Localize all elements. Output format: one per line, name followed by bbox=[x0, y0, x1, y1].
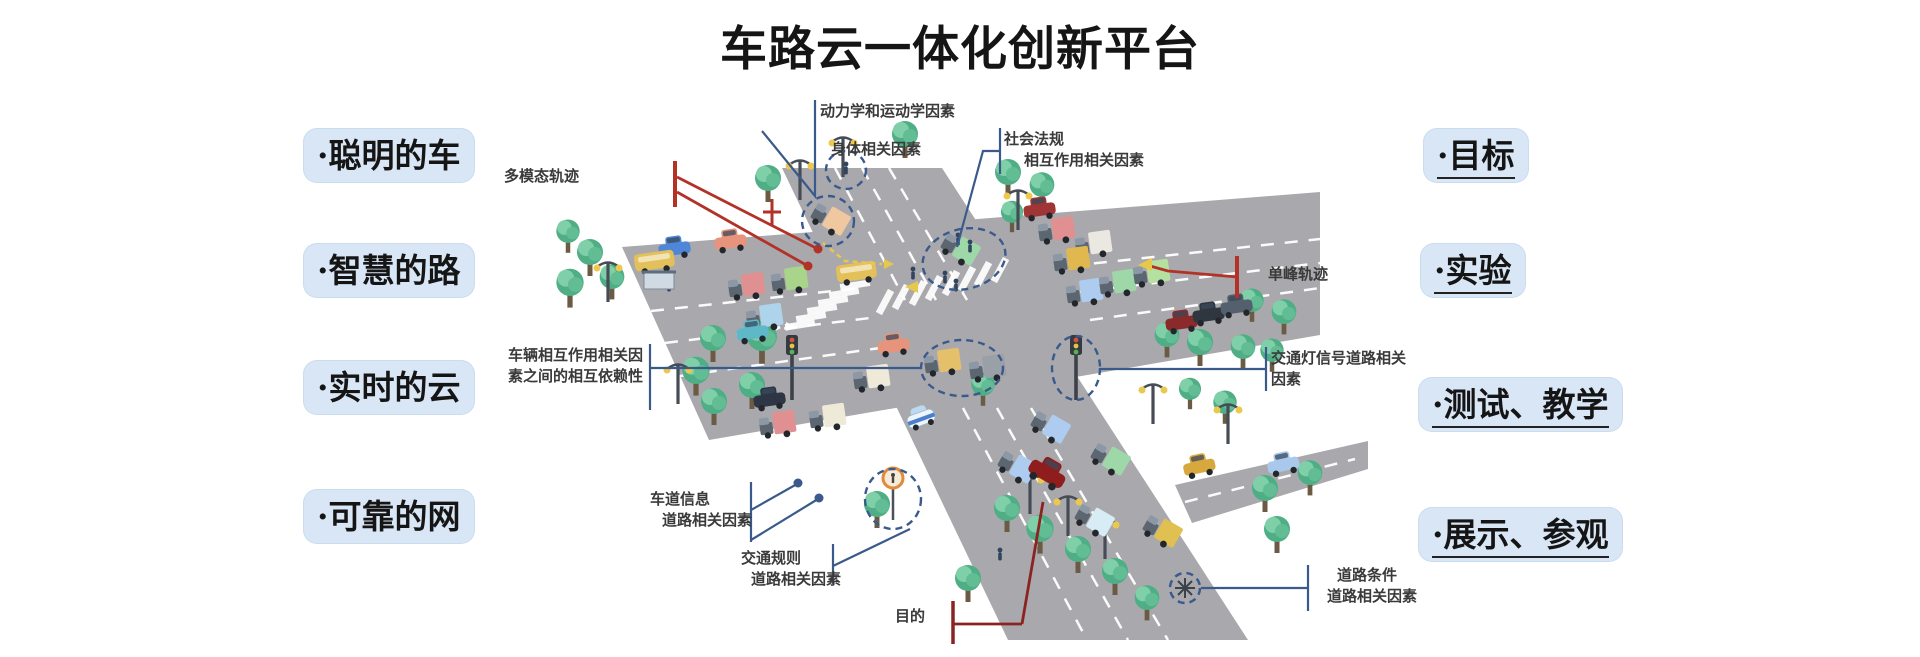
label-text: ·智慧的路 bbox=[317, 251, 461, 290]
slide-canvas: 车路云一体化创新平台 bbox=[0, 0, 1920, 657]
tree-icon bbox=[1179, 378, 1201, 409]
label-text: ·测试、教学 bbox=[1432, 385, 1609, 428]
right-label-test-teaching: ·测试、教学 bbox=[1418, 377, 1623, 432]
street-lamp-icon bbox=[1214, 404, 1243, 444]
annotation-road-condition: 道路条件道路相关因素 bbox=[1327, 565, 1417, 607]
left-label-reliable-network: ·可靠的网 bbox=[303, 489, 475, 544]
left-label-intelligent-road: ·智慧的路 bbox=[303, 243, 475, 298]
callout-line-traffic-rules bbox=[833, 529, 910, 584]
bus-shelter-icon bbox=[642, 272, 676, 289]
annotation-multimodal: 多模态轨迹 bbox=[504, 166, 579, 187]
tree-icon bbox=[1187, 329, 1213, 366]
tree-icon bbox=[1231, 334, 1256, 369]
right-label-goal: ·目标 bbox=[1423, 128, 1529, 183]
street-lamp-icon bbox=[1139, 384, 1168, 424]
pothole-icon bbox=[1175, 578, 1195, 598]
tree-icon bbox=[1264, 516, 1290, 553]
pedestrian-icon bbox=[968, 240, 973, 253]
pedestrian-icon bbox=[943, 271, 948, 284]
tree-icon bbox=[1298, 460, 1323, 495]
annotation-interaction: 车辆相互作用相关因素之间的相互依赖性 bbox=[508, 345, 643, 387]
annotation-traffic-rules: 交通规则道路相关因素 bbox=[741, 548, 841, 590]
tree-icon bbox=[1252, 475, 1278, 512]
annotation-dynamics: 动力学和运动学因素 bbox=[820, 101, 955, 122]
tree-icon bbox=[556, 269, 583, 308]
label-text: ·展示、参观 bbox=[1432, 515, 1609, 558]
right-label-display-visit: ·展示、参观 bbox=[1418, 507, 1623, 562]
callout-line-lane-info bbox=[751, 482, 818, 542]
label-text: ·聪明的车 bbox=[317, 136, 461, 175]
label-text: ·目标 bbox=[1437, 136, 1515, 179]
annotation-unimodal: 单峰轨迹 bbox=[1268, 264, 1328, 285]
tree-icon bbox=[556, 220, 579, 253]
tree-icon bbox=[755, 165, 781, 202]
annotation-social: 社会法规相互作用相关因素 bbox=[1004, 129, 1144, 171]
annotation-purpose: 目的 bbox=[895, 606, 925, 627]
left-label-smart-vehicle: ·聪明的车 bbox=[303, 128, 475, 183]
car-icon bbox=[1181, 451, 1217, 480]
label-text: ·可靠的网 bbox=[317, 497, 461, 536]
left-label-realtime-cloud: ·实时的云 bbox=[303, 360, 475, 415]
right-label-experiment: ·实验 bbox=[1420, 243, 1526, 298]
pedestrian-icon bbox=[911, 267, 916, 280]
pedestrian-icon bbox=[844, 162, 849, 175]
tree-icon bbox=[955, 565, 981, 602]
annotation-traffic-light: 交通灯信号道路相关因素 bbox=[1271, 348, 1406, 390]
annotation-lane-info: 车道信息道路相关因素 bbox=[650, 489, 752, 531]
label-text: ·实验 bbox=[1434, 251, 1512, 294]
label-text: ·实时的云 bbox=[317, 368, 461, 407]
intersection-illustration bbox=[0, 0, 1920, 657]
pedestrian-icon bbox=[998, 548, 1003, 561]
annotation-body-factor: 身体相关因素 bbox=[831, 139, 921, 160]
